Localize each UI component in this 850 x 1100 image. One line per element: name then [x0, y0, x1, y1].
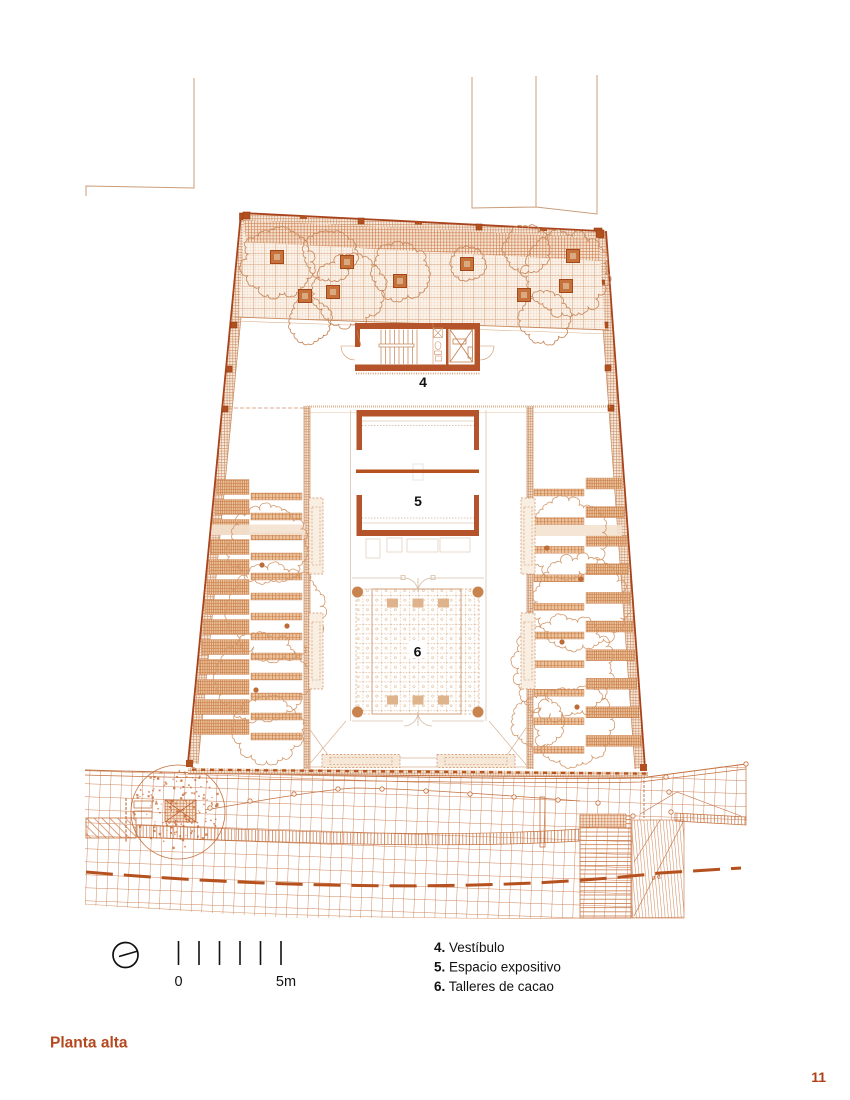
svg-text:5: 5 — [414, 493, 422, 509]
svg-text:6. Talleres de cacao: 6. Talleres de cacao — [434, 979, 554, 994]
svg-text:6: 6 — [414, 644, 422, 660]
svg-text:0: 0 — [174, 974, 182, 990]
svg-text:5m: 5m — [276, 974, 296, 990]
svg-text:11: 11 — [811, 1069, 826, 1085]
svg-text:4. Vestíbulo: 4. Vestíbulo — [434, 940, 505, 955]
svg-text:4: 4 — [419, 374, 427, 390]
svg-text:Planta alta: Planta alta — [50, 1035, 128, 1052]
svg-text:5. Espacio expositivo: 5. Espacio expositivo — [434, 960, 561, 975]
